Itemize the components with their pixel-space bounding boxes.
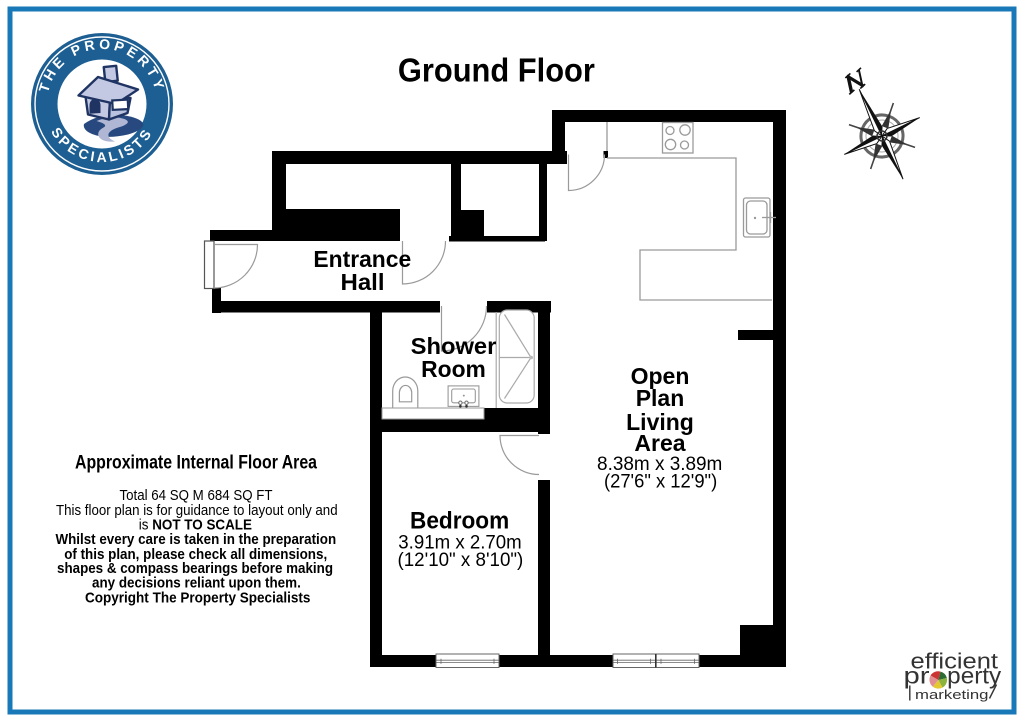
svg-text:Bedroom: Bedroom	[410, 508, 509, 535]
svg-text:Copyright The Property Special: Copyright The Property Specialists	[85, 590, 311, 606]
svg-text:Plan: Plan	[636, 385, 685, 411]
svg-text:Whilst every care is taken in: Whilst every care is taken in the prepar…	[55, 532, 336, 548]
svg-text:(27'6" x 12'9"): (27'6" x 12'9")	[604, 471, 717, 493]
svg-text:any decisions reliant upon the: any decisions reliant upon them.	[92, 576, 301, 592]
svg-text:Hall: Hall	[341, 269, 385, 295]
svg-text:pr: pr	[904, 663, 930, 689]
svg-text:Total 64 SQ M 684 SQ FT: Total 64 SQ M 684 SQ FT	[120, 488, 273, 504]
svg-text:marketing: marketing	[915, 688, 989, 702]
svg-text:Approximate Internal Floor Are: Approximate Internal Floor Area	[75, 452, 317, 474]
svg-text:(12'10" x 8'10"): (12'10" x 8'10")	[398, 549, 524, 571]
svg-text:Room: Room	[421, 356, 486, 382]
svg-text:Ground Floor: Ground Floor	[398, 52, 595, 89]
svg-text:perty: perty	[947, 663, 1002, 689]
